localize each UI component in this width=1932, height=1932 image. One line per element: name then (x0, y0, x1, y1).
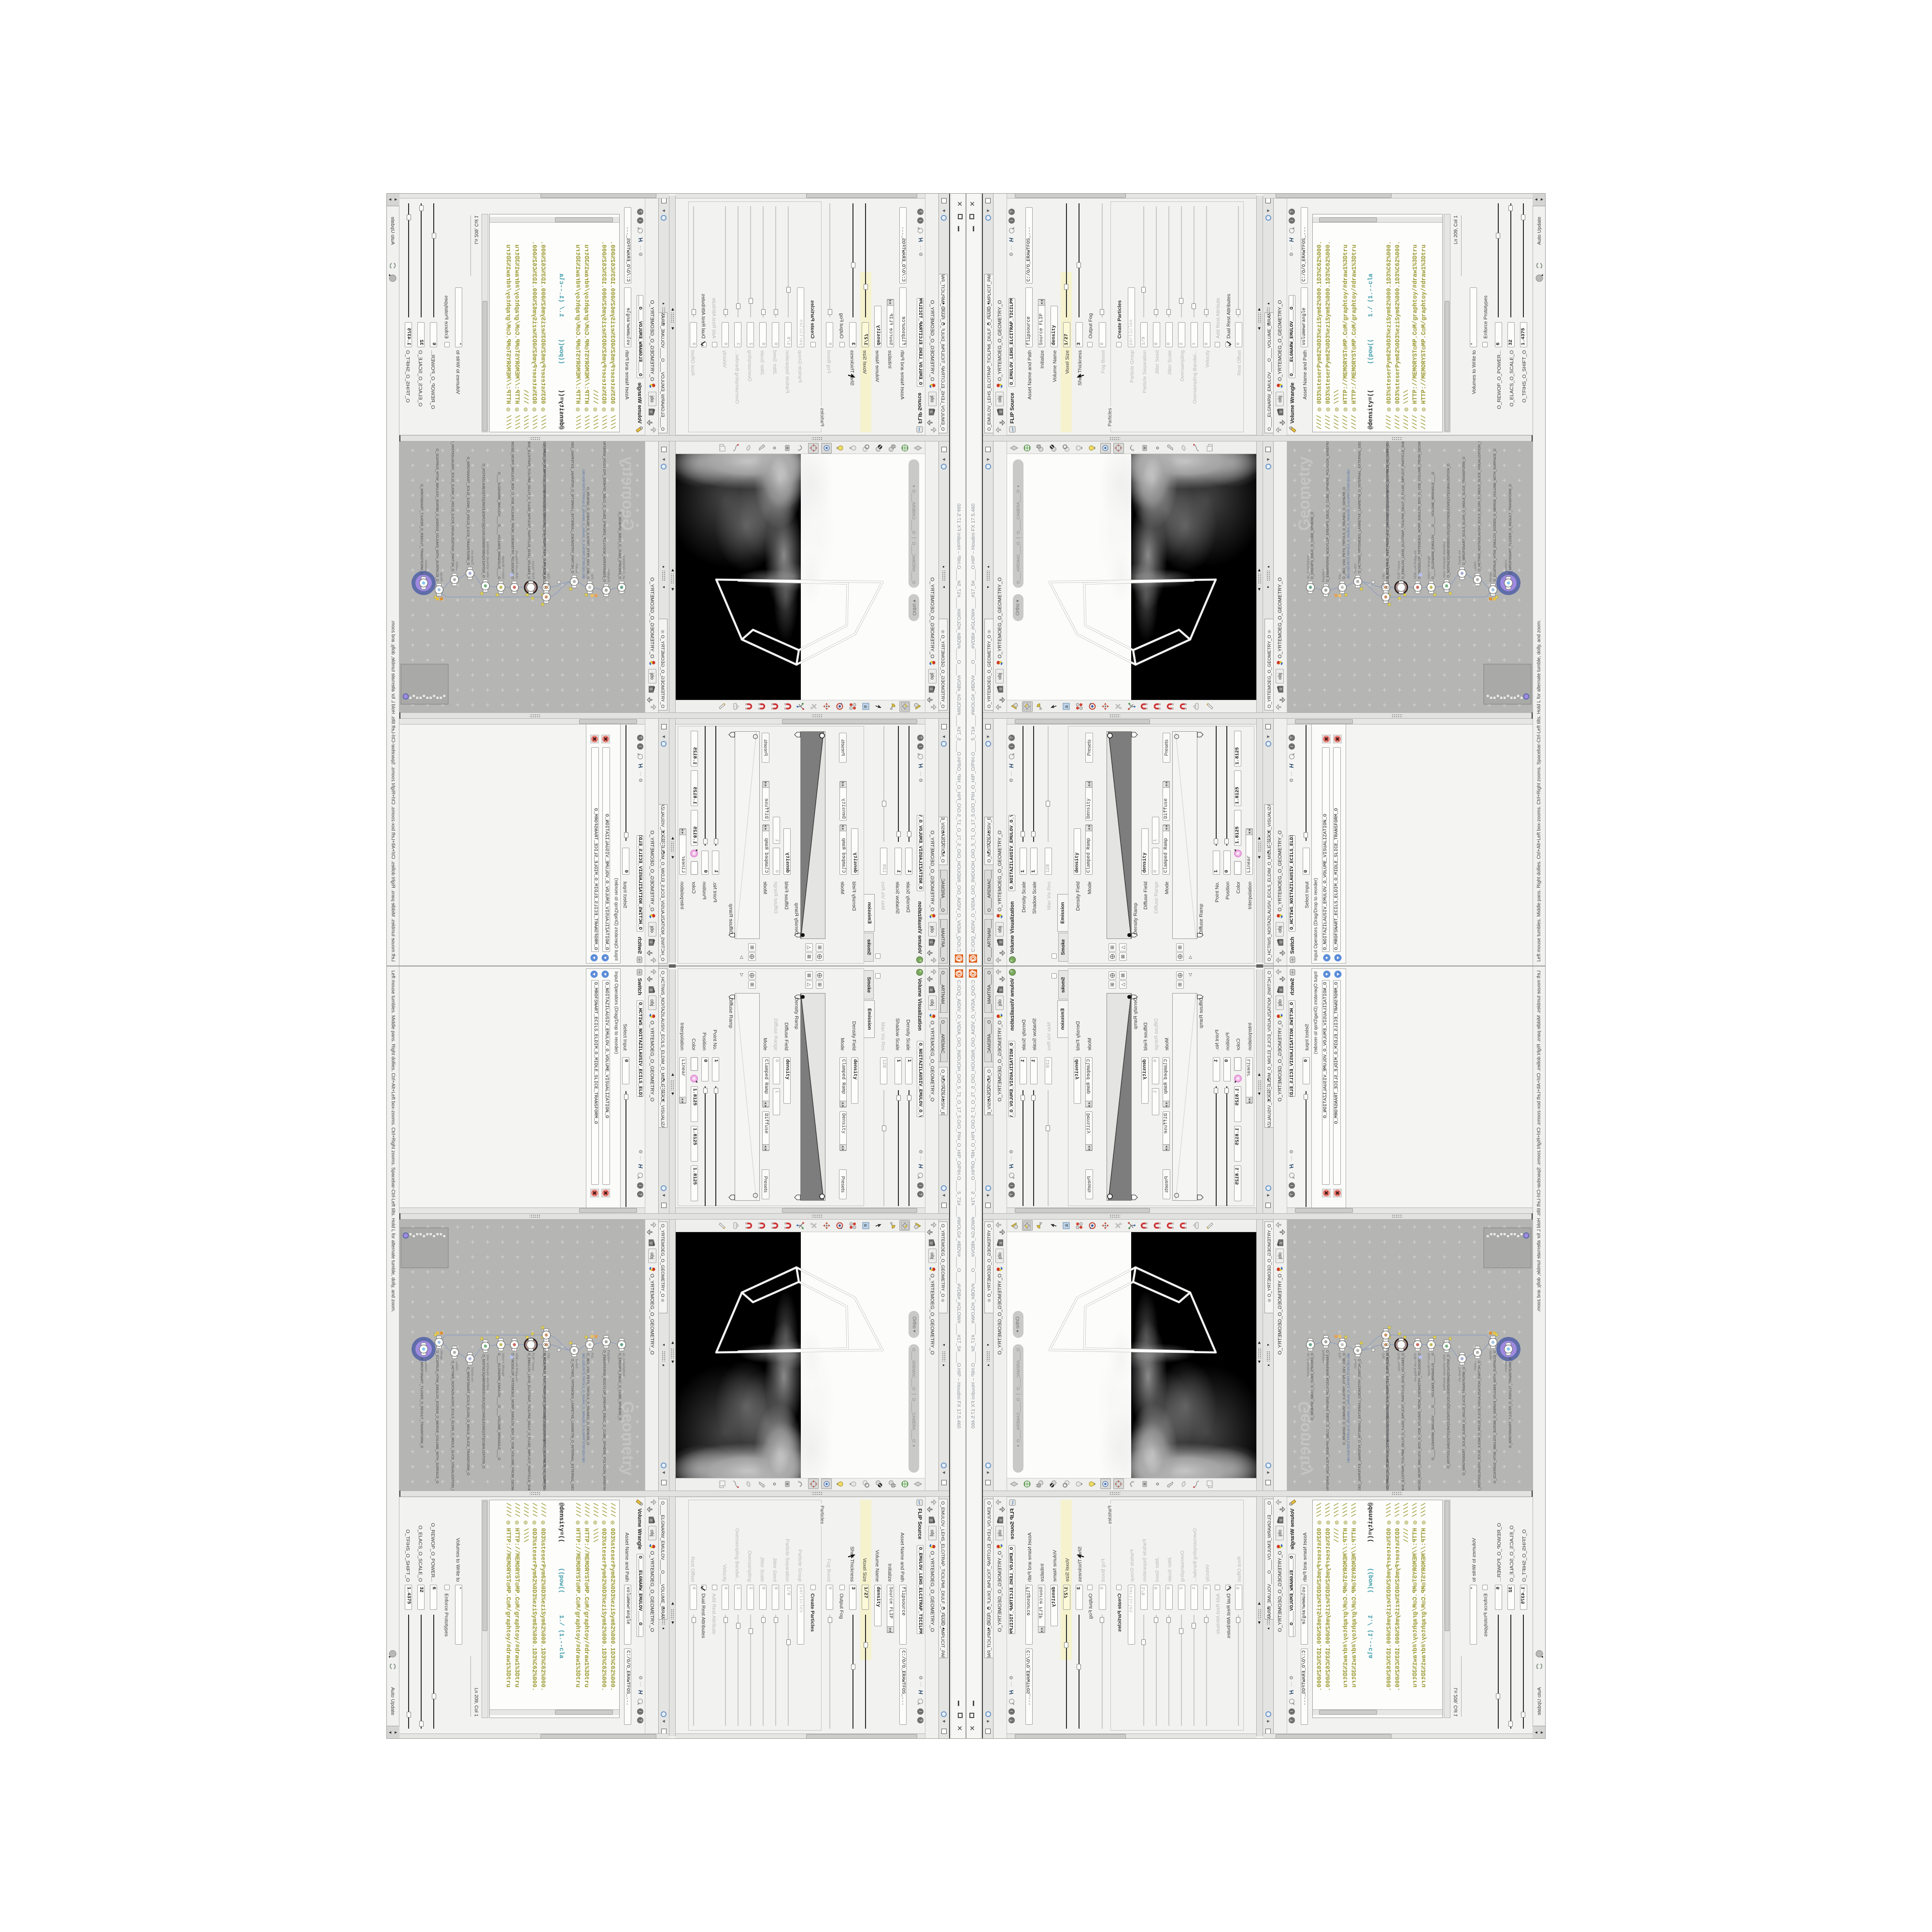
svg-text:Merge: Merge (1489, 1350, 1492, 1360)
svg-text:an_CubeSphere: an_CubeSphere (1307, 1353, 1310, 1377)
svg-text:Switch: Switch (1474, 1361, 1477, 1370)
svg-text:O_EMARFERIW_NOGYLOP_EREHPS_EBU: O_EMARFERIW_NOGYLOP_EREHPS_EBUC_D_CUBE_S… (1325, 1350, 1330, 1491)
svg-text:O_JBO_V3D_PETS_TRFOLS_D_55UNEG: O_JBO_V3D_PETS_TRFOLS_D_55UNEG_O_GENU55_… (586, 487, 590, 579)
svg-text:Switch: Switch (1354, 564, 1357, 573)
svg-text:Clip: Clip (1382, 573, 1385, 579)
svg-text:O_HCTIWS_NOITAZILAUSIV_ECILS_E: O_HCTIWS_NOITAZILAUSIV_ECILS_ELDIN_O_MID… (1477, 1361, 1481, 1491)
svg-text:File: File (590, 1353, 594, 1358)
svg-text:FLIP Source: FLIP Source (531, 1353, 535, 1371)
svg-text:O_MROFSNART_ECILS_ELDIN_O_MIDL: O_MROFSNART_ECILS_ELDIN_O_MIDLE_SLICE_TR… (466, 456, 470, 565)
svg-text:O_MROFSNART_TLUSER_O_RESULT_TR: O_MROFSNART_TLUSER_O_RESULT_TRANSFORM_O (1508, 1357, 1512, 1448)
svg-text:O_HCTIWS_NOITAZILAUSIV_ECILS_E: O_HCTIWS_NOITAZILAUSIV_ECILS_ELDIN_O_MID… (451, 441, 455, 571)
svg-text:O_ECAFRUS_HTIW_EMULOV_EGREM_O_: O_ECAFRUS_HTIW_EMULOV_EGREM_O_MERGE_VOLU… (1492, 448, 1497, 582)
svg-text:Clip: Clip (547, 583, 550, 589)
svg-text:VolumeVisualizationSlice: VolumeVisualizationSlice (486, 541, 489, 578)
svg-text:O_MROFSNART_TLUSER_O_RESULT_TR: O_MROFSNART_TLUSER_O_RESULT_TRANSFORM_O (420, 484, 424, 575)
svg-text:O_HCTIWS_YRTEMOEG_LANRETXE_LAN: O_HCTIWS_YRTEMOEG_LANRETXE_LANRETNI_O_IN… (570, 1359, 575, 1491)
svg-text:O_MROFSNART_ECILS_ELDIN_O_MIDL: O_MROFSNART_ECILS_ELDIN_O_MIDLE_SLICE_TR… (1462, 456, 1466, 565)
svg-text:a: a (1064, 705, 1069, 708)
svg-text:O_EREHPS_EBUC_D_CUBE_SPHERE_O: O_EREHPS_EBUC_D_CUBE_SPHERE_O (1310, 1353, 1314, 1421)
svg-text:Transform: Transform (1458, 550, 1462, 565)
svg-text:O_EMARFERIW_NOGYLOP_EREHPS_EBU: O_EMARFERIW_NOGYLOP_EREHPS_EBUC_D_CUBE_S… (1325, 441, 1330, 582)
svg-text:O_HCTIWS_NOITAZILAUSIV_ECILS_E: O_HCTIWS_NOITAZILAUSIV_ECILS_ELDIN_O_MID… (451, 1361, 455, 1491)
svg-text:JBO.V3D.PETS.TRFOLS_O_55URG_O_: JBO.V3D.PETS.TRFOLS_O_55URG_O_GENU55_O.S… (1347, 469, 1350, 579)
svg-text:O____ELGNARW_EMULOV____O____VO: O____ELGNARW_EMULOV____O____VOLUME_WRANG… (1431, 472, 1435, 579)
svg-text:an_CubeSphere: an_CubeSphere (622, 1353, 625, 1377)
svg-text:O_SNOGILOP_YRTEMOEG_MORF_EMULO: O_SNOGILOP_YRTEMOEG_MORF_EMULOV_BDV_O_VD… (511, 1353, 515, 1491)
svg-text:O_HCTIWS_NOITAZILAUSIV_ECILS_E: O_HCTIWS_NOITAZILAUSIV_ECILS_ELDIN_O_MID… (1477, 441, 1481, 571)
svg-text:a: a (1064, 1224, 1069, 1227)
svg-text:Transform: Transform (470, 1367, 474, 1382)
svg-text:O_ECALRUS_PILC_RVPTPNCE_(P3T)(: O_ECALRUS_PILC_RVPTPNCE_(P3T)(4E33B)(OS)… (542, 443, 547, 589)
svg-text:VolumeVisualizationSlice: VolumeVisualizationSlice (486, 1354, 489, 1391)
svg-text:O_EREHPS_EBUC_D_CUBE_SPHERE_O: O_EREHPS_EBUC_D_CUBE_SPHERE_O (1310, 511, 1314, 579)
svg-text:Clip: Clip (547, 1343, 550, 1349)
svg-text:VolumeVisualizationSlice: VolumeVisualizationSlice (1443, 541, 1446, 578)
svg-text:O_ECAFRUS_HTIW_EMULOV_EGREM_O_: O_ECAFRUS_HTIW_EMULOV_EGREM_O_MERGE_VOLU… (435, 1350, 440, 1484)
svg-text:Merge: Merge (1489, 572, 1492, 582)
svg-text:Clip: Clip (547, 1353, 550, 1359)
svg-text:O_ECAFRUS_HTIW_EMULOV_EGREM_O_: O_ECAFRUS_HTIW_EMULOV_EGREM_O_MERGE_VOLU… (1492, 1350, 1497, 1484)
svg-text:O_NOITAZJQABEN55EEUJD(JQ)(COND: O_NOITAZJQABEN55EEUJD(JQ)(COND)LE(WE)(ST… (482, 1354, 486, 1469)
svg-text:FLIP Source: FLIP Source (1397, 1353, 1401, 1371)
svg-text:O_JBO_V3D_PETS_TRFOLS_D_55UNEG: O_JBO_V3D_PETS_TRFOLS_D_55UNEG_O_GENU55_… (1342, 1353, 1346, 1445)
svg-text:an_CubeSphere: an_CubeSphere (622, 555, 625, 579)
svg-text:Transform: Transform (424, 1357, 427, 1372)
svg-text:O_EMARFERIW_NOGYLOP_EREHPS_EBU: O_EMARFERIW_NOGYLOP_EREHPS_EBUC_D_CUBE_S… (602, 441, 607, 582)
svg-text:O_EREHPS_EBUC_D_CUBE_SPHERE_O: O_EREHPS_EBUC_D_CUBE_SPHERE_O (618, 511, 622, 579)
svg-text:Switch: Switch (1474, 562, 1477, 571)
svg-text:VDB from Polygons: VDB from Polygons (515, 550, 518, 579)
svg-text:O_JBO_V3D_PETS_TRFOLS_D_55UNEG: O_JBO_V3D_PETS_TRFOLS_D_55UNEG_O_GENU55_… (1342, 487, 1346, 579)
svg-text:Clip: Clip (1382, 1353, 1385, 1359)
svg-text:O_EMULOV_LEHS_ELCITRAP_TICILPM: O_EMULOV_LEHS_ELCITRAP_TICILPMI_DIULF_O_… (1401, 441, 1405, 579)
svg-text:PolyWire: PolyWire (1322, 569, 1325, 582)
svg-text:Switch: Switch (455, 562, 458, 571)
svg-text:O_SNOGILOP_YRTEMOEG_MORF_EMULO: O_SNOGILOP_YRTEMOEG_MORF_EMULOV_BDV_O_VD… (511, 441, 515, 579)
svg-text:Clip: Clip (1382, 583, 1385, 589)
svg-text:PolyWire: PolyWire (607, 569, 610, 582)
svg-text:JBO.V3D.PETS.TRFOLS_O_55URG_O_: JBO.V3D.PETS.TRFOLS_O_55URG_O_GENU55_O.S… (582, 469, 585, 579)
svg-text:O_ECALRUS_PILC_RVPTPNCE_(P3T)(: O_ECALRUS_PILC_RVPTPNCE_(P3T)(4E33B)(OS)… (542, 1343, 547, 1489)
svg-text:File: File (590, 574, 594, 579)
svg-text:Transform: Transform (1505, 560, 1508, 575)
svg-text:Transform: Transform (1458, 1367, 1462, 1382)
svg-text:O_ECAFRUS_HTIW_EMULOV_EGREM_O_: O_ECAFRUS_HTIW_EMULOV_EGREM_O_MERGE_VOLU… (435, 448, 440, 582)
svg-text:Volume Wrangle: Volume Wrangle (1427, 555, 1431, 579)
svg-text:Transform: Transform (470, 550, 474, 565)
svg-text:Merge: Merge (440, 572, 443, 582)
svg-text:O_MROFSNART_ECILS_ELDIN_O_MIDL: O_MROFSNART_ECILS_ELDIN_O_MIDLE_SLICE_TR… (1462, 1367, 1466, 1476)
svg-text:O_ECALRUS_PILC_RVPTPNCE_(P3T)(: O_ECALRUS_PILC_RVPTPNCE_(P3T)(4E33B)(OS)… (1385, 1343, 1390, 1489)
svg-text:O_NOITAZJQABEN55EEUJD(JQ)(COND: O_NOITAZJQABEN55EEUJD(JQ)(COND)LE(WE)(ST… (1446, 1354, 1450, 1469)
svg-text:PolyWire: PolyWire (607, 1350, 610, 1363)
svg-text:O_SNOGILOP_YRTEMOEG_MORF_EMULO: O_SNOGILOP_YRTEMOEG_MORF_EMULOV_BDV_O_VD… (1417, 1353, 1421, 1491)
svg-text:a: a (863, 1224, 868, 1227)
svg-text:VDB from Polygons: VDB from Polygons (1414, 1353, 1417, 1382)
svg-text:O_ECALRUS_PILC_RVPTPNCE_(P3T)(: O_ECALRUS_PILC_RVPTPNCE_(P3T)(4E33B)(OS)… (1385, 443, 1390, 589)
svg-text:Switch: Switch (575, 564, 578, 573)
svg-text:FLIP Source: FLIP Source (1397, 561, 1401, 579)
svg-text:O_HCTIWS_YRTEMOEG_LANRETXE_LAN: O_HCTIWS_YRTEMOEG_LANRETXE_LANRETNI_O_IN… (1357, 441, 1362, 573)
svg-text:Clip: Clip (547, 573, 550, 579)
svg-text:Volume Wrangle: Volume Wrangle (1427, 1353, 1431, 1377)
svg-text:Volume Wrangle: Volume Wrangle (501, 555, 505, 579)
svg-text:O_HCTIWS_YRTEMOEG_LANRETXE_LAN: O_HCTIWS_YRTEMOEG_LANRETXE_LANRETNI_O_IN… (1357, 1359, 1362, 1491)
svg-text:Transform: Transform (1505, 1357, 1508, 1372)
svg-text:File: File (1338, 1353, 1342, 1358)
svg-text:O_EMULOV_LEHS_ELCITRAP_TICILPM: O_EMULOV_LEHS_ELCITRAP_TICILPMI_DIULF_O_… (1401, 1353, 1405, 1491)
svg-text:O_JBO_V3D_PETS_TRFOLS_D_55UNEG: O_JBO_V3D_PETS_TRFOLS_D_55UNEG_O_GENU55_… (586, 1353, 590, 1445)
svg-text:a: a (863, 705, 868, 708)
svg-text:O_MROFSNART_TLUSER_O_RESULT_TR: O_MROFSNART_TLUSER_O_RESULT_TRANSFORM_O (420, 1357, 424, 1448)
svg-text:VDB from Polygons: VDB from Polygons (515, 1353, 518, 1382)
svg-text:O_NOITAZJQABEN55EEUJD(JQ)(COND: O_NOITAZJQABEN55EEUJD(JQ)(COND)LE(WE)(ST… (1446, 463, 1450, 578)
svg-text:FLIP Source: FLIP Source (531, 561, 535, 579)
svg-text:O_EREHPS_EBUC_D_CUBE_SPHERE_O: O_EREHPS_EBUC_D_CUBE_SPHERE_O (618, 1353, 622, 1421)
svg-text:Switch: Switch (455, 1361, 458, 1370)
svg-text:O_HCTIWS_YRTEMOEG_LANRETXE_LAN: O_HCTIWS_YRTEMOEG_LANRETXE_LANRETNI_O_IN… (570, 441, 575, 573)
svg-text:File: File (1338, 574, 1342, 579)
svg-text:an_CubeSphere: an_CubeSphere (1307, 555, 1310, 579)
svg-text:O_NOITAZJQABEN55EEUJD(JQ)(COND: O_NOITAZJQABEN55EEUJD(JQ)(COND)LE(WE)(ST… (482, 463, 486, 578)
svg-text:PolyWire: PolyWire (1322, 1350, 1325, 1363)
svg-text:O_EMARFERIW_NOGYLOP_EREHPS_EBU: O_EMARFERIW_NOGYLOP_EREHPS_EBUC_D_CUBE_S… (602, 1350, 607, 1491)
svg-text:JBO.V3D.PETS.TRFOLS_O_55URG_O_: JBO.V3D.PETS.TRFOLS_O_55URG_O_GENU55_O.S… (1347, 1353, 1350, 1463)
svg-text:VolumeVisualizationSlice: VolumeVisualizationSlice (1443, 1354, 1446, 1391)
svg-text:Clip: Clip (1382, 1343, 1385, 1349)
svg-text:O_SNOGILOP_YRTEMOEG_MORF_EMULO: O_SNOGILOP_YRTEMOEG_MORF_EMULOV_BDV_O_VD… (1417, 441, 1421, 579)
svg-text:Volume Wrangle: Volume Wrangle (501, 1353, 505, 1377)
svg-text:O____ELGNARW_EMULOV____O____VO: O____ELGNARW_EMULOV____O____VOLUME_WRANG… (497, 472, 501, 579)
svg-text:Switch: Switch (1354, 1359, 1357, 1368)
svg-text:O_EMULOV_LEHS_ELCITRAP_TICILPM: O_EMULOV_LEHS_ELCITRAP_TICILPMI_DIULF_O_… (527, 441, 531, 579)
svg-text:Transform: Transform (424, 560, 427, 575)
svg-text:O_MROFSNART_ECILS_ELDIN_O_MIDL: O_MROFSNART_ECILS_ELDIN_O_MIDLE_SLICE_TR… (466, 1367, 470, 1476)
svg-text:Merge: Merge (440, 1350, 443, 1360)
svg-text:VDB from Polygons: VDB from Polygons (1414, 550, 1417, 579)
svg-text:O_MROFSNART_TLUSER_O_RESULT_TR: O_MROFSNART_TLUSER_O_RESULT_TRANSFORM_O (1508, 484, 1512, 575)
svg-text:O____ELGNARW_EMULOV____O____VO: O____ELGNARW_EMULOV____O____VOLUME_WRANG… (497, 1353, 501, 1460)
svg-text:JBO.V3D.PETS.TRFOLS_O_55URG_O_: JBO.V3D.PETS.TRFOLS_O_55URG_O_GENU55_O.S… (582, 1353, 585, 1463)
svg-text:O_EMULOV_LEHS_ELCITRAP_TICILPM: O_EMULOV_LEHS_ELCITRAP_TICILPMI_DIULF_O_… (527, 1353, 531, 1491)
svg-text:Switch: Switch (575, 1359, 578, 1368)
svg-text:O____ELGNARW_EMULOV____O____VO: O____ELGNARW_EMULOV____O____VOLUME_WRANG… (1431, 1353, 1435, 1460)
